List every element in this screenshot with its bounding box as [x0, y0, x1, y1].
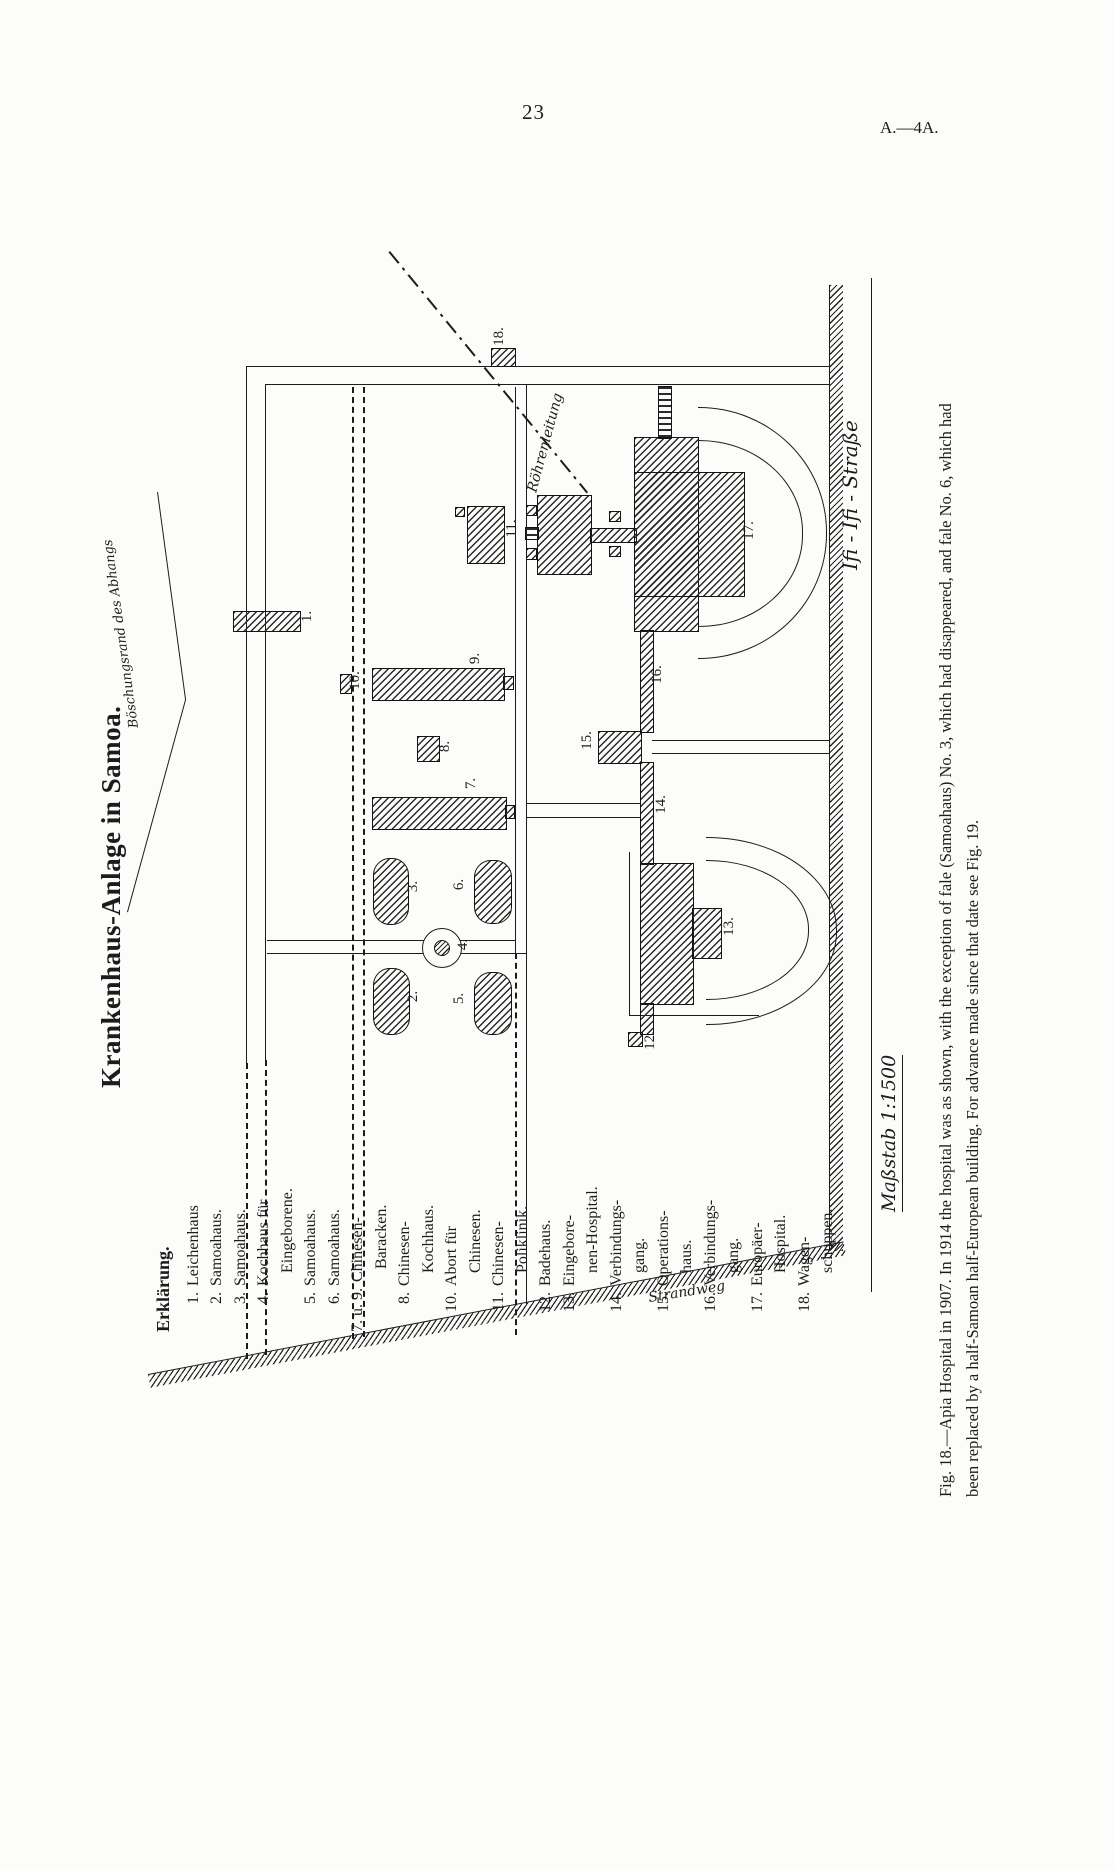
building-18-wagenschuppen — [491, 348, 516, 367]
legend-item: 10.Abort fürChinesen. — [440, 1152, 487, 1332]
boundary-top-inner — [265, 384, 830, 385]
label-building-12: 12. — [642, 1031, 659, 1050]
label-building-2: 2. — [405, 991, 422, 1002]
label-building-8: 8. — [437, 741, 454, 752]
legend-item: 7. u. 9.Chinesen-Baracken. — [346, 1152, 393, 1332]
building-7-annex — [505, 805, 515, 819]
label-building-9: 9. — [467, 653, 484, 664]
road-west-lower — [527, 817, 640, 818]
label-building-16: 16. — [649, 665, 666, 684]
building-13-eingeborenen-hospital — [640, 863, 694, 1005]
path-vertical-west — [515, 387, 516, 953]
label-building-13: 13. — [721, 917, 738, 936]
label-building-7: 7. — [463, 778, 480, 789]
scale-label: Maßstab 1:1500 — [878, 1055, 903, 1212]
label-building-6: 6. — [451, 879, 468, 890]
annex-post-3 — [526, 548, 537, 560]
label-building-15: 15. — [579, 731, 596, 750]
label-building-10: 10. — [347, 671, 364, 690]
scanned-document-page: 23 A.—4A. Krankenhaus-Anlage in Samoa. — [0, 0, 1114, 1869]
annex-post-2 — [525, 527, 539, 540]
building-1-leichenhaus — [233, 611, 301, 632]
label-building-5: 5. — [451, 993, 468, 1004]
legend-item: 5.Samoahaus. — [299, 1152, 323, 1332]
building-9-chinesen-baracke — [372, 668, 505, 701]
legend-item: 12.Badehaus. — [534, 1152, 558, 1332]
slope-label: Böschungsrand des Abhangs — [101, 539, 142, 730]
building-west-annex — [537, 495, 592, 575]
label-building-17: 17. — [741, 521, 758, 540]
street-far-edge — [871, 278, 872, 1292]
building-11-chinesen-poliklinik — [467, 506, 505, 564]
building-4-kochhaus-core — [434, 940, 450, 956]
label-building-11: 11. — [504, 519, 521, 537]
road-middle-lower — [267, 953, 527, 954]
legend-item: 14.Verbindungs-gang. — [605, 1152, 652, 1332]
legend-item: 2.Samoahaus. — [205, 1152, 229, 1332]
entrance-walkway — [658, 386, 672, 439]
boundary-top-outer — [246, 366, 830, 367]
building-3-samoahaus — [373, 858, 409, 925]
slope-line-upper — [157, 492, 186, 700]
legend-item: 6.Samoahaus. — [323, 1152, 347, 1332]
label-building-18: 18. — [491, 327, 508, 346]
building-5-samoahaus — [474, 972, 512, 1035]
label-building-14: 14. — [653, 795, 670, 814]
yard-line-west — [629, 852, 630, 1015]
label-building-4: 4. — [455, 939, 472, 950]
road-west-upper — [527, 803, 640, 804]
label-building-3: 3. — [405, 881, 422, 892]
legend-item: 1.Leichenhaus — [182, 1152, 206, 1332]
boundary-left-outer — [246, 366, 247, 1063]
annex-post-4 — [609, 511, 621, 522]
slope-line-lower — [127, 700, 186, 912]
pipe-line — [388, 251, 588, 494]
legend-item: 8.Chinesen-Kochhaus. — [393, 1152, 440, 1332]
legend-item: 15.Operations-haus. — [652, 1152, 699, 1332]
legend-item: 3.Samoahaus. — [229, 1152, 253, 1332]
road-north-upper — [652, 740, 830, 741]
figure-caption: Fig. 18.—Apia Hospital in 1907. In 1914 … — [932, 225, 986, 1497]
boundary-left-inner — [265, 384, 266, 1060]
annex-post-1 — [526, 505, 537, 516]
street-name-label: Ifi - Ifi - Straße — [838, 420, 862, 570]
pipe-label: Röhrenleitung — [525, 391, 567, 494]
building-6-samoahaus — [474, 860, 512, 924]
building-15-operationshaus — [598, 731, 642, 764]
caption-line-2: been replaced by a half-Samoan half-Euro… — [959, 225, 986, 1497]
annex-post-5 — [609, 546, 621, 557]
legend: Erklärung. 1.Leichenhaus 2.Samoahaus. 3.… — [152, 1152, 840, 1332]
legend-item: 11.Chinesen-Poliklinik. — [487, 1152, 534, 1332]
road-north-lower — [652, 753, 830, 754]
building-12-badehaus — [628, 1032, 643, 1047]
annex-corridor — [590, 528, 637, 543]
label-building-1: 1. — [299, 611, 316, 622]
legend-heading: Erklärung. — [152, 1152, 176, 1332]
building-7-chinesen-baracke — [372, 797, 507, 830]
legend-item: 18.Wagen-schuppen. — [793, 1152, 840, 1332]
legend-item: 13.Eingebore-nen-Hospital. — [558, 1152, 605, 1332]
legend-item: 16.Verbindungs-gang. — [699, 1152, 746, 1332]
legend-item: 4.Kochhaus fürEingeborene. — [252, 1152, 299, 1332]
legend-item: 17.Europäer-Hospital. — [746, 1152, 793, 1332]
building-11-annex — [455, 507, 465, 517]
building-9-annex — [503, 676, 514, 690]
caption-line-1: Fig. 18.—Apia Hospital in 1907. In 1914 … — [932, 225, 959, 1497]
road-middle-upper — [267, 940, 515, 941]
